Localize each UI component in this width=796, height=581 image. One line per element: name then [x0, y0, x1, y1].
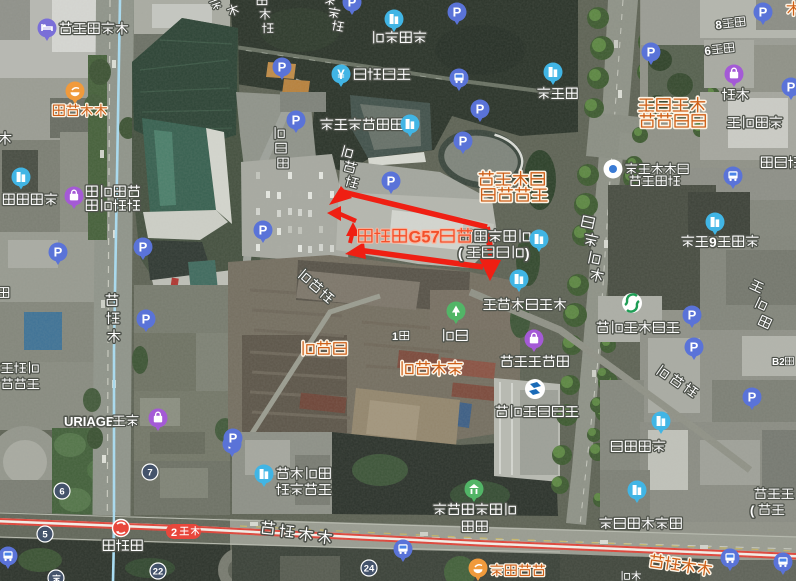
svg-text:P: P: [453, 5, 462, 20]
svg-text:24: 24: [364, 564, 375, 575]
svg-text:P: P: [647, 45, 656, 60]
svg-text:URIAGE: URIAGE: [64, 414, 115, 429]
svg-text:6: 6: [59, 487, 64, 498]
svg-text:P: P: [787, 80, 796, 95]
svg-text:P: P: [142, 312, 151, 327]
svg-text:G57: G57: [409, 229, 440, 247]
svg-text:P: P: [759, 5, 768, 20]
svg-text:P: P: [229, 431, 238, 446]
svg-text:22: 22: [153, 567, 164, 578]
svg-text:B2: B2: [772, 357, 785, 368]
svg-text:P: P: [348, 0, 357, 10]
svg-text:6: 6: [704, 45, 712, 58]
svg-text:¥: ¥: [337, 67, 345, 82]
svg-text:P: P: [54, 245, 63, 260]
svg-text:1: 1: [392, 331, 398, 343]
svg-text:P: P: [476, 102, 485, 117]
svg-text:P: P: [292, 113, 301, 128]
svg-text:P: P: [139, 240, 148, 255]
svg-text:P: P: [748, 390, 757, 405]
svg-text:P: P: [459, 134, 468, 149]
svg-text:(: (: [750, 503, 755, 518]
svg-text:2: 2: [171, 527, 177, 539]
svg-text:5: 5: [42, 530, 48, 541]
svg-text:P: P: [690, 340, 699, 355]
svg-text:): ): [525, 245, 530, 261]
svg-text:P: P: [387, 174, 396, 189]
svg-text:P: P: [259, 223, 268, 238]
svg-text:P: P: [688, 308, 697, 323]
svg-text:7: 7: [147, 468, 152, 479]
svg-text:9: 9: [709, 235, 717, 250]
svg-text:(: (: [458, 245, 463, 261]
svg-text:P: P: [278, 60, 287, 75]
